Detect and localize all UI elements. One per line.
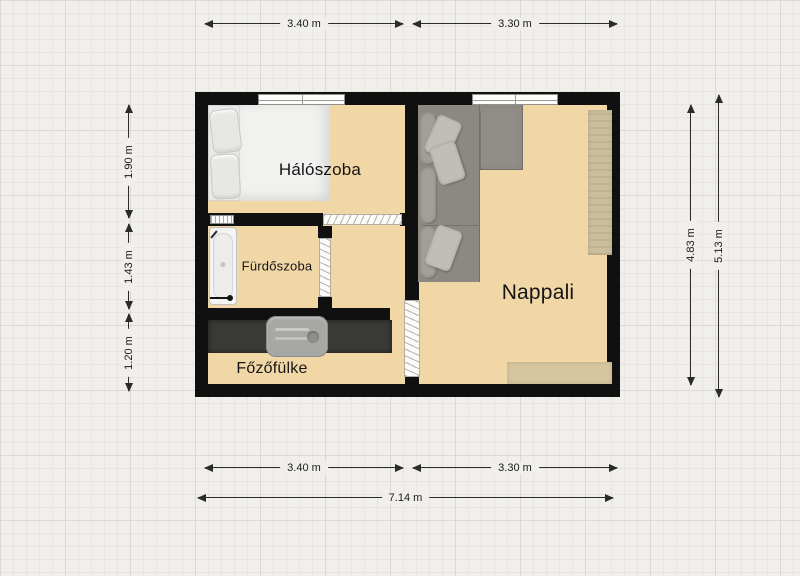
bedroom-hall-door[interactable] — [323, 214, 402, 225]
arrowhead-icon — [687, 104, 695, 113]
dimension-bottom-total: 7.14 m — [198, 497, 613, 498]
wall-partition-middle-lower — [405, 377, 419, 384]
wall-vent-icon — [210, 215, 234, 224]
arrowhead-icon — [204, 20, 213, 28]
arrowhead-icon — [125, 104, 133, 113]
dimension-label: 3.40 m — [280, 18, 328, 30]
arrowhead-icon — [395, 464, 404, 472]
bathtub[interactable] — [209, 227, 237, 305]
arrowhead-icon — [395, 20, 404, 28]
arrowhead-icon — [125, 223, 133, 232]
bedroom-window[interactable] — [258, 94, 345, 105]
dimension-label: 1.43 m — [123, 243, 135, 291]
arrowhead-icon — [197, 494, 206, 502]
bed-pillow — [208, 107, 242, 154]
kitchenette-label: Főzőfülke — [236, 360, 307, 378]
arrowhead-icon — [605, 494, 614, 502]
dimension-left-upper: 1.90 m — [128, 105, 129, 218]
arrowhead-icon — [412, 20, 421, 28]
arrowhead-icon — [412, 464, 421, 472]
sofa-bolster — [420, 167, 436, 223]
dimension-label: 4.83 m — [685, 221, 697, 269]
dimension-right-outer: 5.13 m — [718, 95, 719, 397]
dimension-label: 5.13 m — [713, 222, 725, 270]
sofa[interactable] — [418, 105, 523, 282]
wall-partition-middle-upper — [405, 105, 419, 300]
arrowhead-icon — [609, 20, 618, 28]
floor-plan-canvas: Hálószoba Fürdőszoba Főzőfülke Nappali 3… — [0, 0, 800, 576]
arrowhead-icon — [687, 377, 695, 386]
cabinet[interactable] — [588, 110, 612, 255]
wall-outer-bottom — [195, 384, 620, 397]
sofa-seam — [480, 111, 481, 170]
dimension-label: 3.30 m — [491, 18, 539, 30]
dimension-top-left: 3.40 m — [205, 23, 403, 24]
stove[interactable] — [266, 316, 328, 357]
bed-pillow — [210, 153, 241, 199]
arrowhead-icon — [204, 464, 213, 472]
dimension-top-right: 3.30 m — [413, 23, 617, 24]
dimension-label: 7.14 m — [382, 492, 430, 504]
livingroom-door[interactable] — [404, 300, 420, 377]
bath-fitting-icon — [210, 297, 230, 299]
dimension-label: 1.20 m — [123, 329, 135, 377]
bathroom-door[interactable] — [319, 238, 331, 297]
arrowhead-icon — [715, 389, 723, 398]
dimension-bottom-left: 3.40 m — [205, 467, 403, 468]
dimension-left-lower: 1.20 m — [128, 314, 129, 391]
arrowhead-icon — [609, 464, 618, 472]
wall-outer-left — [195, 92, 208, 397]
dimension-label: 1.90 m — [123, 138, 135, 186]
wall-bathroom-east-upper — [318, 226, 332, 238]
bathroom-label: Fürdőszoba — [242, 259, 313, 274]
dimension-label: 3.30 m — [491, 462, 539, 474]
arrowhead-icon — [715, 94, 723, 103]
arrowhead-icon — [125, 383, 133, 392]
dimension-label: 3.40 m — [280, 462, 328, 474]
livingroom-label: Nappali — [502, 281, 575, 305]
arrowhead-icon — [125, 301, 133, 310]
rug[interactable] — [507, 362, 612, 384]
bed-duvet — [239, 105, 330, 201]
bedroom-label: Hálószoba — [279, 160, 361, 180]
arrowhead-icon — [125, 210, 133, 219]
dimension-right-inner: 4.83 m — [690, 105, 691, 385]
bed[interactable] — [208, 105, 330, 201]
dimension-left-middle: 1.43 m — [128, 224, 129, 309]
arrowhead-icon — [125, 313, 133, 322]
dimension-bottom-right: 3.30 m — [413, 467, 617, 468]
livingroom-window[interactable] — [472, 94, 558, 105]
